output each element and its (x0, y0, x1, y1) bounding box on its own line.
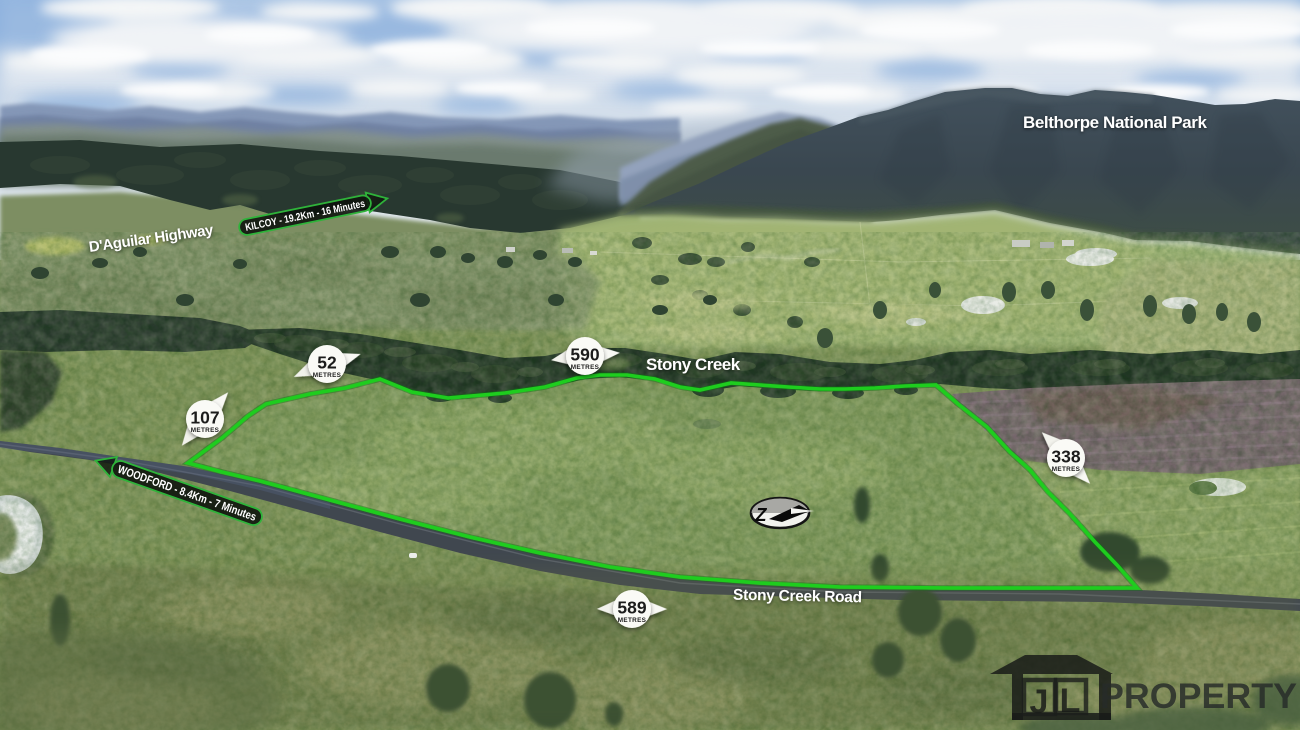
svg-text:J: J (1030, 683, 1049, 721)
svg-text:PROPERTY: PROPERTY (1100, 677, 1297, 716)
svg-text:L: L (1060, 682, 1081, 720)
svg-text:METRES: METRES (191, 427, 220, 434)
svg-text:52: 52 (317, 353, 337, 373)
svg-text:107: 107 (190, 408, 219, 428)
svg-text:METRES: METRES (1052, 466, 1081, 473)
svg-text:338: 338 (1051, 447, 1080, 467)
svg-text:589: 589 (617, 598, 646, 618)
svg-text:590: 590 (570, 345, 599, 365)
svg-text:Z: Z (755, 505, 768, 525)
svg-text:METRES: METRES (313, 372, 342, 379)
svg-text:METRES: METRES (618, 617, 647, 624)
svg-text:METRES: METRES (571, 364, 600, 371)
